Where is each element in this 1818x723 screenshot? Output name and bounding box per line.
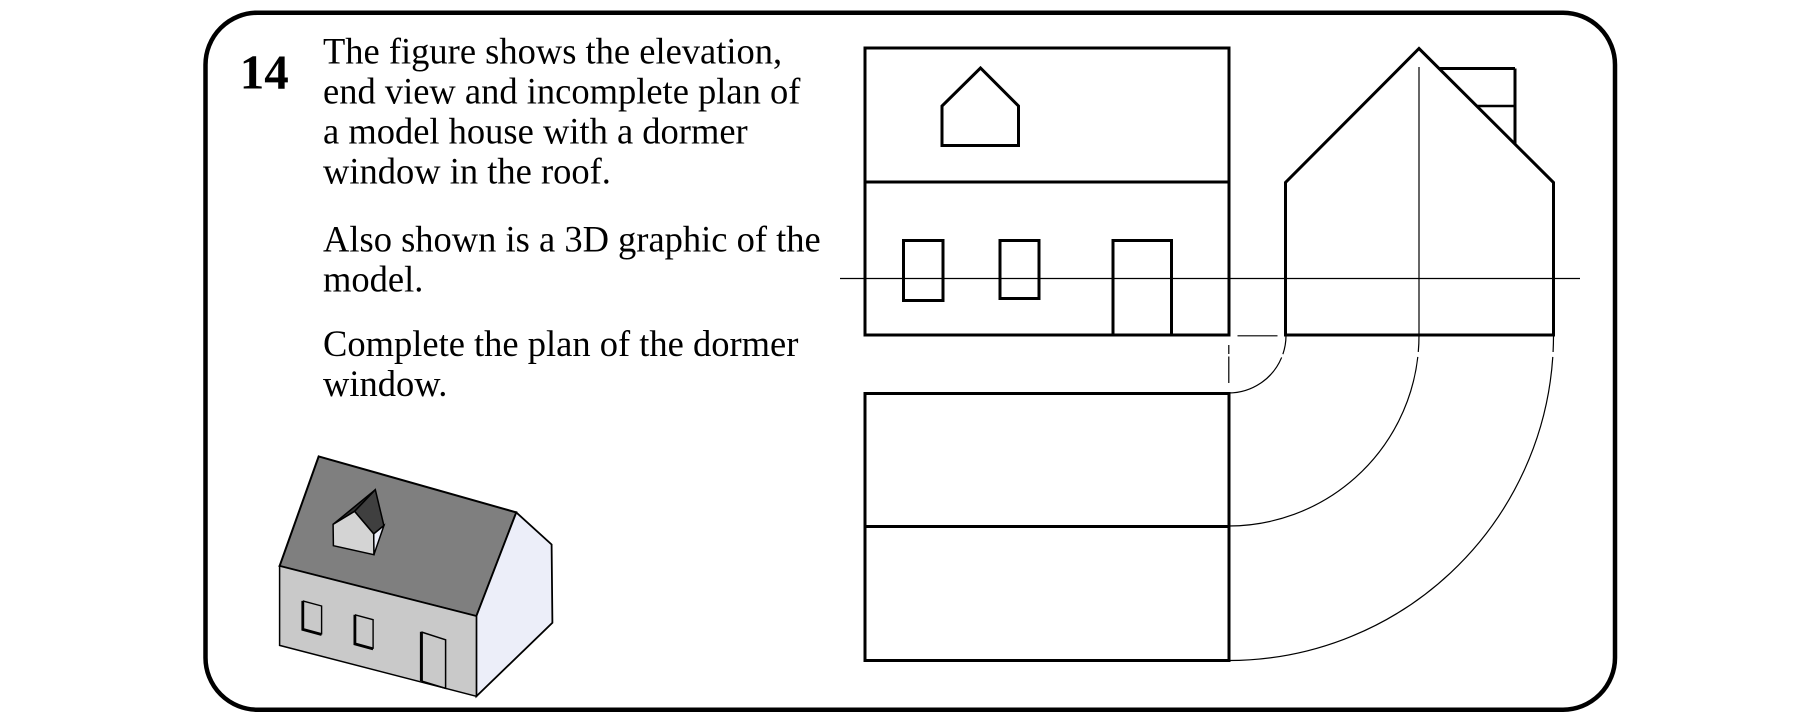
svg-text:end view and incomplete plan o: end view and incomplete plan of xyxy=(323,71,801,112)
svg-text:Complete the plan of the dorme: Complete the plan of the dormer xyxy=(323,323,798,364)
svg-text:window.: window. xyxy=(323,363,447,404)
svg-text:The figure shows the elevation: The figure shows the elevation, xyxy=(323,31,782,72)
svg-text:Also shown is a 3D graphic of: Also shown is a 3D graphic of the xyxy=(323,219,821,260)
svg-text:a model house with a dormer: a model house with a dormer xyxy=(323,111,748,152)
svg-text:window in the roof.: window in the roof. xyxy=(323,151,611,192)
svg-text:14: 14 xyxy=(240,45,289,100)
svg-text:model.: model. xyxy=(323,259,423,300)
